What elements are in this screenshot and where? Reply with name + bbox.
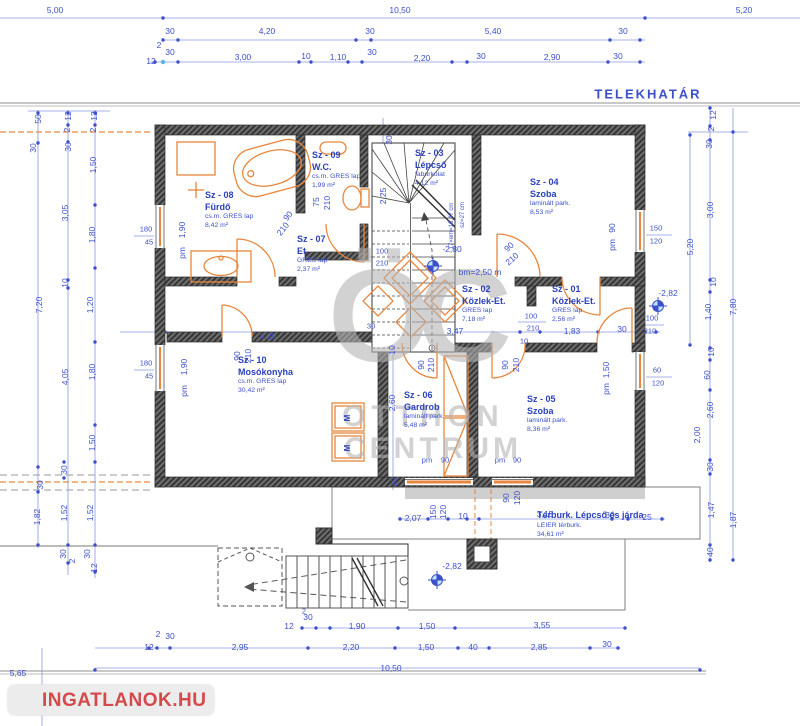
floorplan-canvas: ÖC OTTHON CENTRUM TELEKHATÁR 5,0010,505,… (0, 0, 800, 726)
wardrobes (444, 356, 468, 476)
floorplan-drawing (0, 0, 800, 726)
staircase (372, 143, 455, 352)
toilet (343, 186, 369, 210)
brand-logo-text: INGATLANOK.HU (42, 690, 206, 712)
shower-cabinet (177, 142, 215, 198)
washing-machines (332, 403, 364, 461)
wc-sink (320, 142, 346, 154)
dimension-lines (0, 18, 800, 726)
terrace-outline (332, 487, 700, 610)
plot-boundary-label: TELEKHATÁR (594, 87, 701, 102)
entry-column (467, 489, 497, 569)
external-stair (218, 528, 408, 608)
